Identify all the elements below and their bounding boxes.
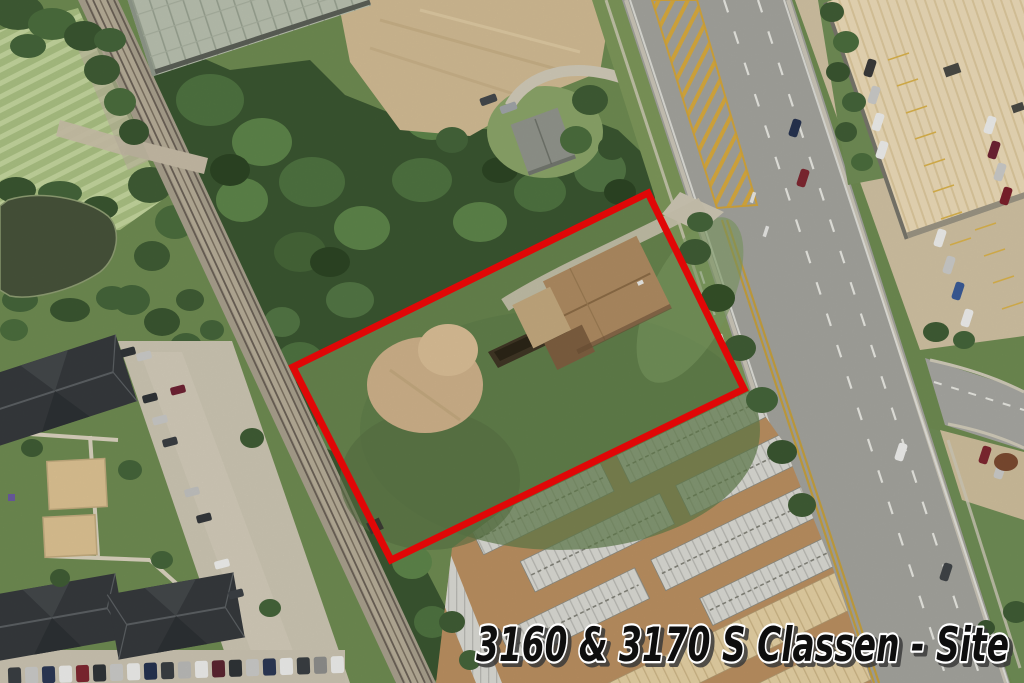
aerial-imagery: 3160 & 3170 S Classen - Site 3160 & 3170…	[0, 0, 1024, 683]
photo-grain	[0, 0, 1024, 683]
aerial-site-exhibit: 3160 & 3170 S Classen - Site 3160 & 3170…	[0, 0, 1024, 683]
site-caption: 3160 & 3170 S Classen - Site	[476, 618, 1009, 673]
